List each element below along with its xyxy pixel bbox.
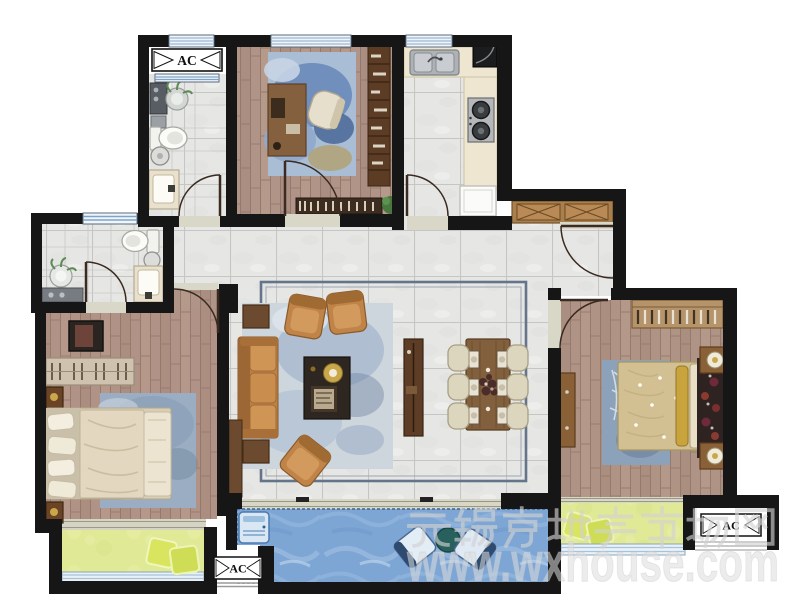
svg-text:AC: AC (229, 562, 246, 576)
svg-text:AC: AC (177, 53, 197, 68)
svg-text:www.wxhouse.com: www.wxhouse.com (406, 531, 779, 593)
